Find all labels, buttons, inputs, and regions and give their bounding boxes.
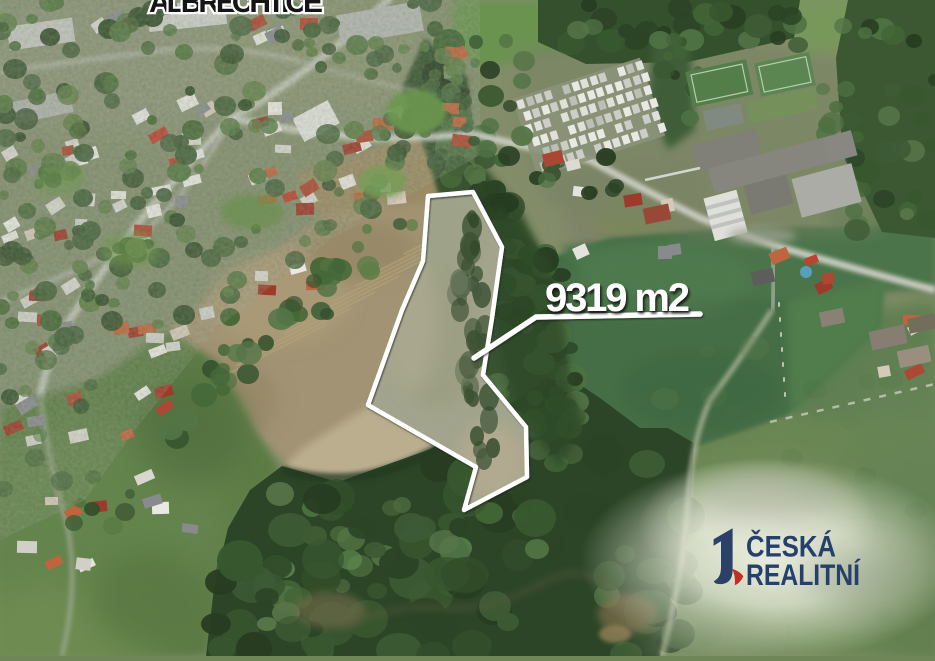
svg-text:ALBRECHTICE: ALBRECHTICE [149, 0, 323, 19]
svg-text:9319 m2: 9319 m2 [545, 276, 690, 320]
svg-text:REALITNÍ: REALITNÍ [746, 558, 861, 592]
